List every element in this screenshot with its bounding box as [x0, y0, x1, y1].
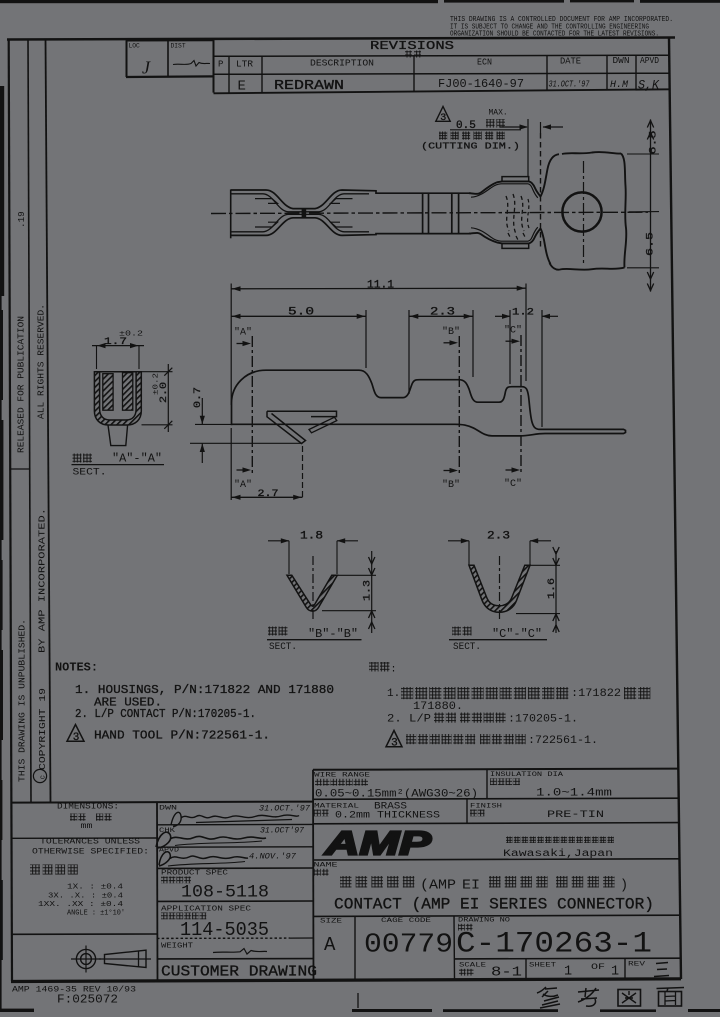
svg-text:E: E [238, 79, 246, 95]
svg-text:APPLICATION SPEC: APPLICATION SPEC [161, 906, 252, 914]
svg-text:DIMENSIONS:: DIMENSIONS: [57, 803, 119, 812]
svg-text:NAME: NAME [314, 862, 338, 870]
svg-text:108-5118: 108-5118 [181, 883, 269, 903]
svg-text:THIS DRAWING IS UNPUBLISHED.: THIS DRAWING IS UNPUBLISHED. [17, 619, 28, 782]
svg-text:1.: 1. [387, 688, 400, 700]
svg-text:ALL RIGHTS RESERVED.: ALL RIGHTS RESERVED. [36, 304, 47, 419]
svg-text:COPYRIGHT 19: COPYRIGHT 19 [37, 688, 48, 770]
svg-text:"B": "B" [442, 326, 460, 338]
svg-text:8-1: 8-1 [491, 966, 522, 981]
svg-text:2.0: 2.0 [158, 382, 170, 403]
svg-text:1.3: 1.3 [362, 580, 374, 601]
svg-text:3: 3 [440, 113, 446, 124]
svg-text:"B": "B" [442, 479, 460, 491]
svg-text:OF: OF [591, 962, 605, 972]
svg-text:"C": "C" [504, 478, 522, 490]
svg-text:31.OCT.'97: 31.OCT.'97 [549, 80, 590, 90]
svg-text:PRE-TIN: PRE-TIN [547, 809, 604, 821]
svg-text:WIRE RANGE: WIRE RANGE [314, 772, 370, 780]
svg-text:0.7: 0.7 [193, 387, 204, 408]
svg-text:J: J [142, 58, 151, 78]
svg-text:): ) [620, 879, 628, 894]
svg-text:H.M: H.M [610, 79, 629, 91]
svg-text:P: P [218, 60, 223, 70]
svg-text:1XX. .XX : ±0.4: 1XX. .XX : ±0.4 [38, 901, 124, 909]
svg-text:MAX.: MAX. [489, 109, 508, 118]
svg-text:1: 1 [611, 965, 619, 980]
svg-text::171822: :171822 [571, 688, 621, 700]
svg-text:11.1: 11.1 [367, 279, 394, 291]
svg-text:6.5: 6.5 [645, 232, 657, 256]
svg-text:SCALE: SCALE [459, 962, 486, 970]
svg-text:Kawasaki,Japan: Kawasaki,Japan [503, 848, 613, 860]
svg-text:1X. : ±0.4: 1X. : ±0.4 [67, 884, 124, 892]
svg-text:(CUTTING DIM.): (CUTTING DIM.) [421, 141, 520, 152]
svg-text:0.05~0.15mm²(AWG30~26): 0.05~0.15mm²(AWG30~26) [315, 789, 478, 801]
svg-text:S,K: S,K [638, 79, 659, 93]
svg-text:ANGLE : ±1°10': ANGLE : ±1°10' [67, 909, 125, 918]
svg-text:REV: REV [628, 961, 646, 969]
svg-text:2. L/P CONTACT P/N:170205-1.: 2. L/P CONTACT P/N:170205-1. [75, 707, 256, 721]
svg-text:"A": "A" [234, 479, 252, 491]
svg-text:BY AMP INCORPORATED.: BY AMP INCORPORATED. [37, 508, 48, 653]
svg-text::170205-1.: :170205-1. [508, 714, 578, 726]
svg-text:REVISIONS: REVISIONS [370, 40, 454, 53]
svg-text:INSULATION DIA: INSULATION DIA [490, 771, 564, 779]
svg-text:LOC: LOC [129, 43, 141, 50]
svg-text:"C": "C" [504, 325, 522, 337]
svg-text:DWN: DWN [159, 805, 177, 813]
svg-text:1.8: 1.8 [300, 531, 323, 543]
svg-text:1.0~1.4mm: 1.0~1.4mm [536, 788, 612, 800]
svg-text:3: 3 [73, 732, 80, 744]
svg-text:1.2: 1.2 [512, 306, 534, 318]
svg-text:SECT.: SECT. [453, 642, 481, 653]
svg-text:A: A [324, 934, 336, 956]
svg-text:SIZE: SIZE [320, 918, 342, 926]
svg-text:00779: 00779 [364, 931, 453, 961]
svg-text:mm: mm [81, 821, 93, 831]
svg-text:OTHERWISE SPECIFIED:: OTHERWISE SPECIFIED: [32, 847, 149, 857]
svg-text:0.2mm THICKNESS: 0.2mm THICKNESS [335, 810, 440, 822]
svg-text:C-170263-1: C-170263-1 [456, 928, 652, 962]
svg-text:2. L/P: 2. L/P [387, 714, 431, 726]
svg-text:31.OCT.'97: 31.OCT.'97 [259, 806, 310, 814]
svg-text:CAGE CODE: CAGE CODE [381, 917, 431, 925]
svg-text:REDRAWN: REDRAWN [274, 79, 344, 94]
svg-text:HAND TOOL P/N:722561-1.: HAND TOOL P/N:722561-1. [94, 729, 270, 743]
svg-text:DIST: DIST [171, 43, 186, 50]
svg-text:.19: .19 [16, 211, 27, 228]
svg-text:2.3: 2.3 [430, 306, 455, 318]
svg-text:ECN: ECN [477, 57, 492, 68]
svg-text:(AMP: (AMP [420, 879, 456, 894]
svg-text:CONTACT (AMP EI SERIES CONNECT: CONTACT (AMP EI SERIES CONNECTOR) [334, 896, 654, 914]
svg-text:FINISH: FINISH [470, 803, 502, 811]
svg-text:31.OCT'97: 31.OCT'97 [260, 828, 304, 836]
svg-text:SECT.: SECT. [269, 642, 297, 653]
svg-text:c: c [40, 775, 48, 780]
svg-text:DWN: DWN [613, 56, 630, 66]
svg-text:SHEET: SHEET [529, 962, 556, 970]
svg-text:F:025072: F:025072 [57, 994, 118, 1007]
svg-text:3X. .X. : ±0.4: 3X. .X. : ±0.4 [48, 893, 124, 901]
svg-text:1: 1 [564, 965, 572, 980]
svg-text:WEIGHT: WEIGHT [161, 943, 194, 951]
svg-text:171880.: 171880. [413, 701, 463, 713]
svg-text:AMP: AMP [324, 825, 433, 862]
svg-text:LTR: LTR [236, 60, 254, 70]
svg-text:1.6: 1.6 [546, 578, 558, 599]
svg-text:TOLERANCES UNLESS: TOLERANCES UNLESS [40, 837, 140, 847]
svg-text:CUSTOMER DRAWING: CUSTOMER DRAWING [161, 965, 317, 981]
svg-text:RELEASED FOR PUBLICATION: RELEASED FOR PUBLICATION [16, 316, 27, 453]
svg-text:"A"-"A": "A"-"A" [112, 453, 162, 466]
svg-text:EI: EI [462, 879, 480, 894]
svg-text:6.5: 6.5 [648, 131, 660, 155]
svg-text:PRODUCT SPEC: PRODUCT SPEC [161, 870, 229, 878]
svg-text:SECT.: SECT. [73, 468, 107, 479]
svg-text::722561-1.: :722561-1. [528, 735, 598, 747]
svg-text:"A": "A" [234, 327, 252, 339]
svg-text:FJ00-1640-97: FJ00-1640-97 [438, 78, 524, 91]
svg-text:DRAWING NO: DRAWING NO [458, 917, 510, 925]
svg-text:DATE: DATE [560, 56, 581, 67]
svg-text:DESCRIPTION: DESCRIPTION [310, 58, 374, 69]
svg-text:114-5035: 114-5035 [180, 919, 269, 941]
svg-text:2.3: 2.3 [487, 531, 510, 543]
svg-text:4.NOV.'97: 4.NOV.'97 [249, 854, 296, 862]
svg-text:3: 3 [391, 738, 398, 750]
svg-text:5.0: 5.0 [288, 306, 314, 318]
svg-text:APVD: APVD [640, 56, 659, 66]
svg-text:2.7: 2.7 [258, 488, 279, 500]
svg-text::: : [391, 665, 397, 676]
svg-text:NOTES:: NOTES: [55, 661, 98, 675]
